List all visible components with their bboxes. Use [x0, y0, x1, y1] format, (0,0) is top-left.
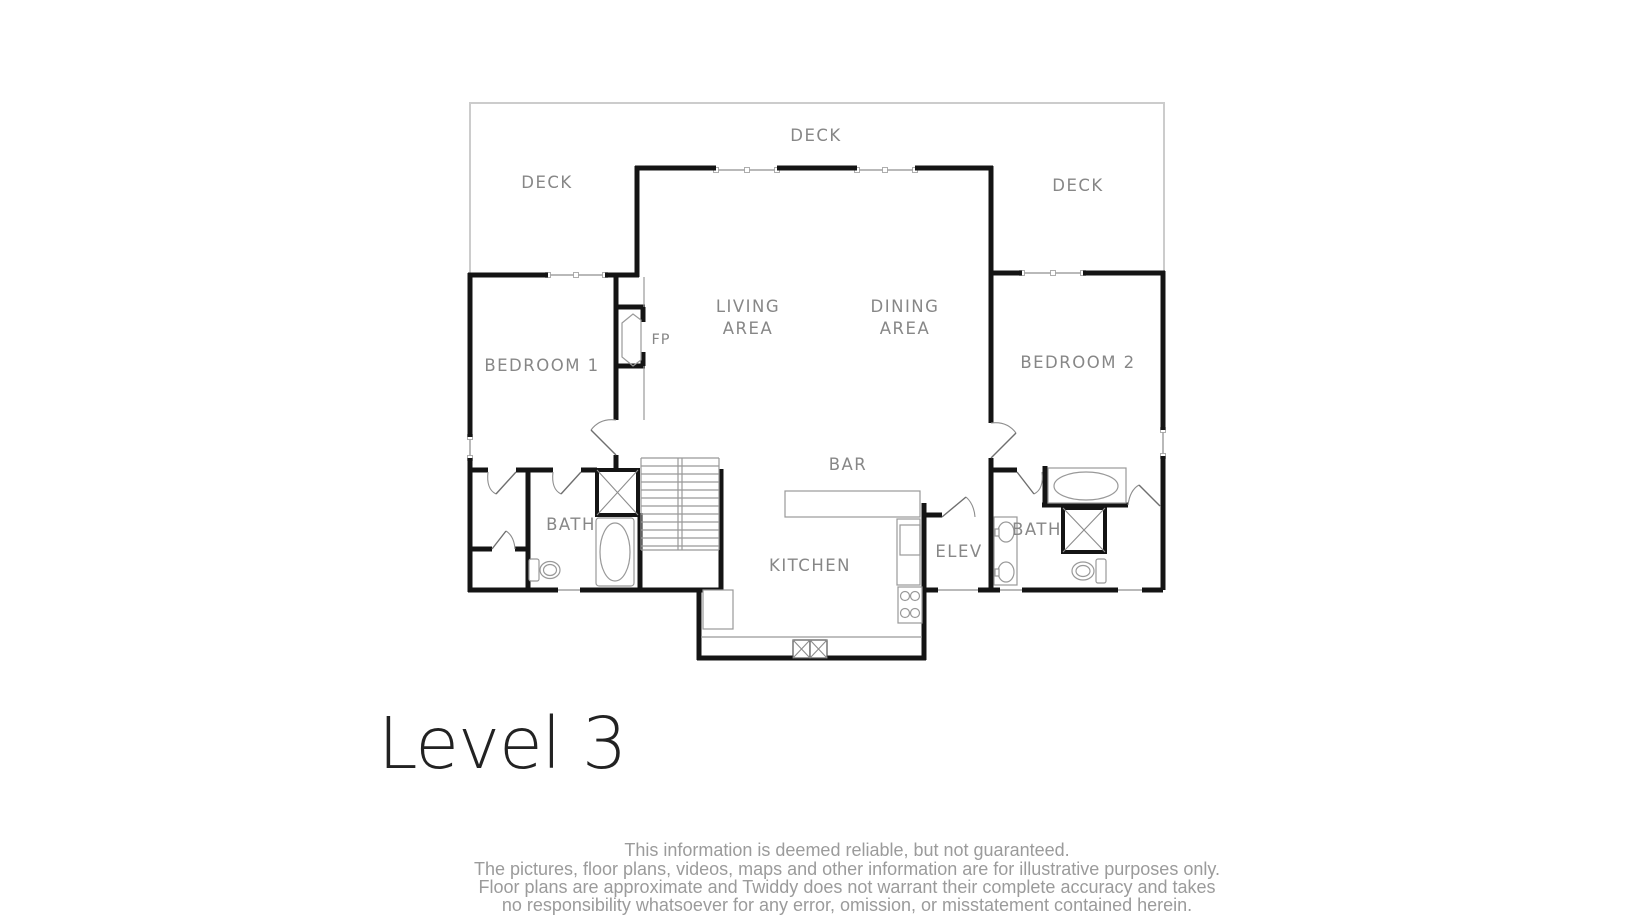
kitchen-sink: [793, 640, 827, 658]
room-label-living-1: LIVING: [716, 297, 780, 316]
bar-counter: [785, 491, 920, 517]
toilet-2: [1072, 559, 1106, 583]
room-label-dining-1: DINING: [871, 297, 940, 316]
door-bath2-bedroom: [1128, 485, 1160, 506]
room-label-fireplace: FP: [651, 332, 670, 348]
door-elevator: [942, 497, 975, 517]
room-label-bar: BAR: [829, 455, 868, 474]
disclaimer-line-4: no responsibility whatsoever for any err…: [502, 895, 1192, 915]
disclaimer-line-1: This information is deemed reliable, but…: [624, 840, 1069, 860]
shower-2: [1063, 508, 1105, 552]
window-ticks: [468, 168, 1166, 461]
room-label-dining-2: AREA: [880, 319, 930, 338]
door-bath1: [553, 472, 581, 494]
room-label-deck-left: DECK: [521, 173, 572, 192]
bathtub-1: [596, 518, 634, 586]
door-wc1: [492, 531, 515, 549]
great-room-walls: [635, 166, 993, 590]
room-label-bath-right: BATH: [1012, 520, 1062, 539]
room-label-deck-top: DECK: [790, 126, 841, 145]
disclaimer-line-3: Floor plans are approximate and Twiddy d…: [478, 877, 1215, 897]
door-bath2: [1017, 472, 1042, 494]
floor-plan-page: DECK DECK DECK LIVING AREA DINING AREA B…: [0, 0, 1632, 916]
door-bedroom2: [991, 423, 1016, 458]
room-label-bedroom1: BEDROOM 1: [484, 356, 599, 375]
disclaimer-line-2: The pictures, floor plans, videos, maps …: [474, 859, 1220, 879]
level-title: Level 3: [378, 702, 626, 785]
toilet-1: [529, 559, 560, 581]
shower-closet-1: [597, 470, 638, 515]
room-label-bath-left: BATH: [546, 515, 596, 534]
room-label-deck-right: DECK: [1052, 176, 1103, 195]
stove: [898, 587, 922, 623]
bathtub-2: [1048, 468, 1126, 503]
room-label-living-2: AREA: [723, 319, 773, 338]
kitchen-counter: [701, 519, 922, 637]
fireplace: [622, 277, 644, 420]
door-bedroom1: [591, 420, 616, 455]
bedroom1-wing-walls: [468, 273, 721, 592]
stairs: [641, 458, 719, 550]
refrigerator: [703, 590, 733, 629]
room-label-kitchen: KITCHEN: [769, 556, 851, 575]
door-hall-closet: [488, 472, 516, 494]
floor-plan-level-3: DECK DECK DECK LIVING AREA DINING AREA B…: [0, 0, 1632, 916]
room-label-elevator: ELEV: [935, 542, 982, 561]
room-label-bedroom2: BEDROOM 2: [1020, 353, 1135, 372]
